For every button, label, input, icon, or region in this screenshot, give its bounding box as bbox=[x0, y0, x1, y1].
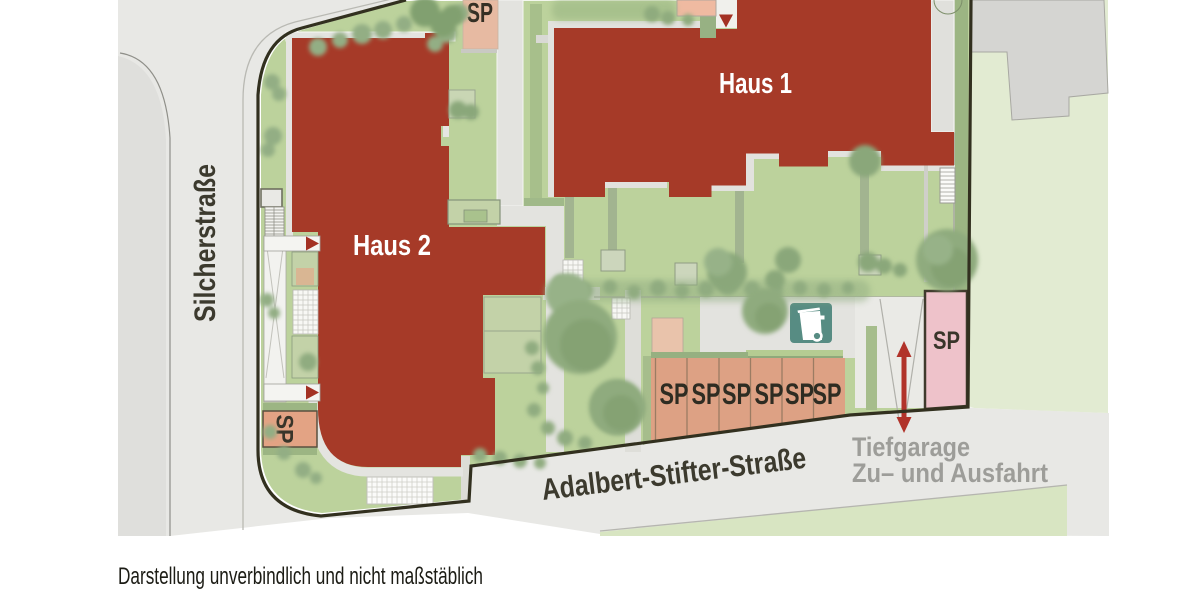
svg-text:SP: SP bbox=[692, 378, 721, 411]
svg-text:Darstellung unverbindlich und: Darstellung unverbindlich und nicht maßs… bbox=[118, 563, 483, 590]
svg-text:SP: SP bbox=[467, 0, 493, 28]
svg-text:Zu– und Ausfahrt: Zu– und Ausfahrt bbox=[852, 458, 1048, 488]
svg-text:Haus 2: Haus 2 bbox=[353, 230, 431, 262]
svg-text:SP: SP bbox=[785, 378, 814, 411]
svg-text:SP: SP bbox=[933, 327, 960, 355]
svg-text:Silcherstraße: Silcherstraße bbox=[189, 164, 222, 322]
svg-text:Haus 1: Haus 1 bbox=[719, 68, 792, 100]
svg-text:SP: SP bbox=[813, 378, 842, 411]
svg-text:SP: SP bbox=[660, 378, 689, 411]
svg-text:SP: SP bbox=[755, 378, 784, 411]
svg-text:SP: SP bbox=[722, 378, 751, 411]
